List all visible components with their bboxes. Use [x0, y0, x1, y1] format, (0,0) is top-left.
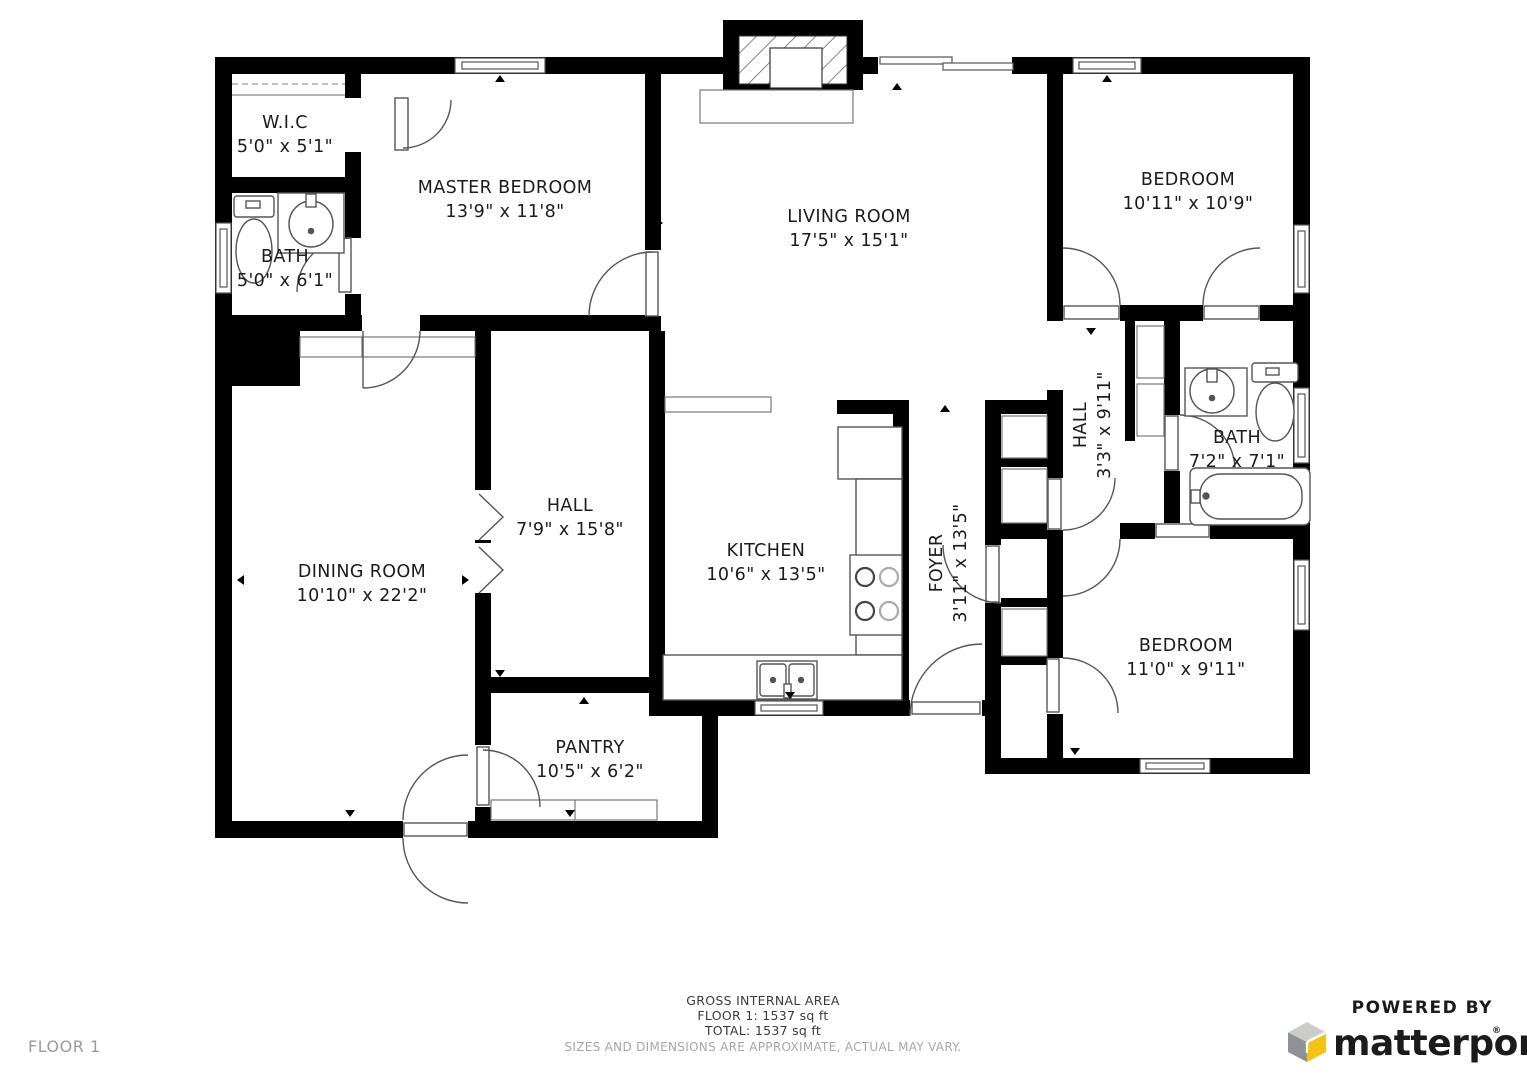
room-dims-bath-left: 5'0" x 6'1": [237, 271, 333, 291]
total-area: TOTAL: 1537 sq ft: [704, 1023, 821, 1038]
direction-marker: [495, 670, 505, 677]
direction-marker: [1086, 328, 1096, 335]
door-bedroom2-top: [1063, 539, 1120, 596]
wic-shelf: [232, 74, 345, 95]
room-dims-master-bedroom: 13'9" x 11'8": [445, 202, 564, 222]
bathtub: [1190, 468, 1310, 525]
opening: [362, 315, 420, 331]
direction-marker: [495, 75, 505, 82]
room-dims-kitchen: 10'6" x 13'5": [706, 565, 825, 585]
wall-segment: [215, 331, 300, 386]
room-dims-foyer: 3'11" x 13'5": [951, 503, 971, 622]
wall-segment: [1047, 57, 1063, 321]
sliding-leaf: [1156, 524, 1209, 537]
wall-segment: [1001, 598, 1047, 607]
floorplan-page: W.I.C 5'0" x 5'1" BATH 5'0" x 6'1" MASTE…: [0, 0, 1527, 1080]
fireplace: [700, 20, 863, 123]
room-label-pantry: PANTRY: [555, 738, 624, 758]
wall-segment: [215, 315, 661, 331]
room-label-hall-small: HALL: [1071, 402, 1091, 448]
sink-vanity-right: [1185, 368, 1247, 416]
window: [1294, 225, 1309, 293]
window: [1073, 58, 1141, 73]
door-hall-right: [1048, 478, 1115, 530]
room-label-bath-left: BATH: [261, 247, 309, 267]
door-pantry: [477, 747, 540, 807]
opening: [1063, 523, 1120, 539]
wall-segment: [702, 693, 718, 838]
window: [1294, 560, 1309, 630]
wall-segment: [215, 57, 232, 838]
refrigerator: [838, 427, 902, 479]
hall-closet: [1137, 326, 1164, 378]
footer: FLOOR 1 GROSS INTERNAL AREA FLOOR 1: 153…: [28, 993, 962, 1056]
direction-marker: [940, 405, 950, 412]
wall-segment: [215, 177, 345, 193]
direction-marker: [579, 697, 589, 704]
room-label-kitchen: KITCHEN: [727, 541, 806, 561]
room-dims-living-room: 17'5" x 15'1": [789, 231, 908, 251]
room-label-bedroom-bottom: BEDROOM: [1139, 636, 1233, 656]
wall-segment: [1001, 458, 1047, 467]
toilet-left: [234, 196, 274, 283]
door-bedroom1-left: [1063, 248, 1120, 319]
room-dims-bedroom-top: 10'11" x 10'9": [1123, 194, 1254, 214]
room-label-bath-right: BATH: [1213, 428, 1261, 448]
room-label-master-bedroom: MASTER BEDROOM: [418, 178, 593, 198]
room-label-foyer: FOYER: [927, 534, 947, 593]
hall-closet: [1137, 384, 1164, 436]
room-dims-bedroom-bottom: 11'0" x 9'11": [1126, 660, 1245, 680]
room-dims-hall-center: 7'9" x 15'8": [516, 520, 624, 540]
branding: POWERED BY matterport ®: [1288, 998, 1527, 1064]
direction-marker: [462, 575, 469, 585]
door-bedroom2: [1047, 658, 1118, 713]
stove: [850, 555, 902, 635]
window: [1140, 759, 1210, 773]
door-front-double: [403, 755, 468, 903]
window: [455, 58, 545, 73]
window: [216, 223, 231, 293]
window: [755, 701, 823, 715]
wall-segment: [1125, 321, 1135, 441]
room-label-living-room: LIVING ROOM: [787, 207, 910, 227]
room-dims-wic: 5'0" x 5'1": [237, 137, 333, 157]
fixtures: [234, 193, 1310, 700]
room-dims-bath-right: 7'2" x 7'1": [1189, 452, 1285, 472]
door-bedroom1-right: [1203, 248, 1260, 319]
floorplan-svg: W.I.C 5'0" x 5'1" BATH 5'0" x 6'1" MASTE…: [0, 0, 1527, 1080]
registered-mark: ®: [1492, 1026, 1501, 1036]
direction-marker: [1102, 75, 1112, 82]
gross-internal-area: GROSS INTERNAL AREA: [686, 993, 840, 1008]
door-foyer-entry: [910, 644, 982, 716]
powered-by-label: POWERED BY: [1352, 998, 1493, 1018]
firebox: [770, 48, 822, 88]
foyer-closet: [1002, 609, 1047, 656]
floor-label: FLOOR 1: [28, 1037, 101, 1056]
direction-marker: [237, 575, 244, 585]
matterport-cube-icon: [1288, 1022, 1326, 1062]
hearth: [700, 90, 853, 123]
opening: [345, 98, 361, 152]
disclaimer: SIZES AND DIMENSIONS ARE APPROXIMATE, AC…: [564, 1040, 961, 1054]
room-dims-pantry: 10'5" x 6'2": [536, 762, 644, 782]
room-dims-dining-room: 10'10" x 22'2": [297, 586, 428, 606]
wall-segment: [475, 677, 665, 693]
direction-marker: [345, 810, 355, 817]
window: [1294, 388, 1309, 463]
room-label-dining-room: DINING ROOM: [298, 562, 426, 582]
room-label-hall-center: HALL: [547, 496, 593, 516]
room-label-bedroom-top: BEDROOM: [1141, 170, 1235, 190]
doors: [297, 98, 1260, 903]
direction-marker: [1070, 748, 1080, 755]
wall-segment: [1001, 656, 1047, 665]
door-wic: [395, 98, 451, 150]
direction-marker: [892, 83, 902, 90]
dining-builtin-shelf: [300, 337, 475, 357]
sink-vanity-left: [278, 193, 344, 253]
room-dims-hall-small: 3'3" x 9'11": [1095, 371, 1115, 479]
room-label-wic: W.I.C: [262, 113, 308, 133]
floor-area: FLOOR 1: 1537 sq ft: [697, 1008, 828, 1023]
foyer-closet: [1002, 416, 1047, 458]
kitchen-breakfast-bar: [665, 397, 771, 412]
wall-segment: [1047, 390, 1063, 774]
door-master-entry: [589, 252, 658, 316]
foyer-closet: [1002, 469, 1047, 523]
